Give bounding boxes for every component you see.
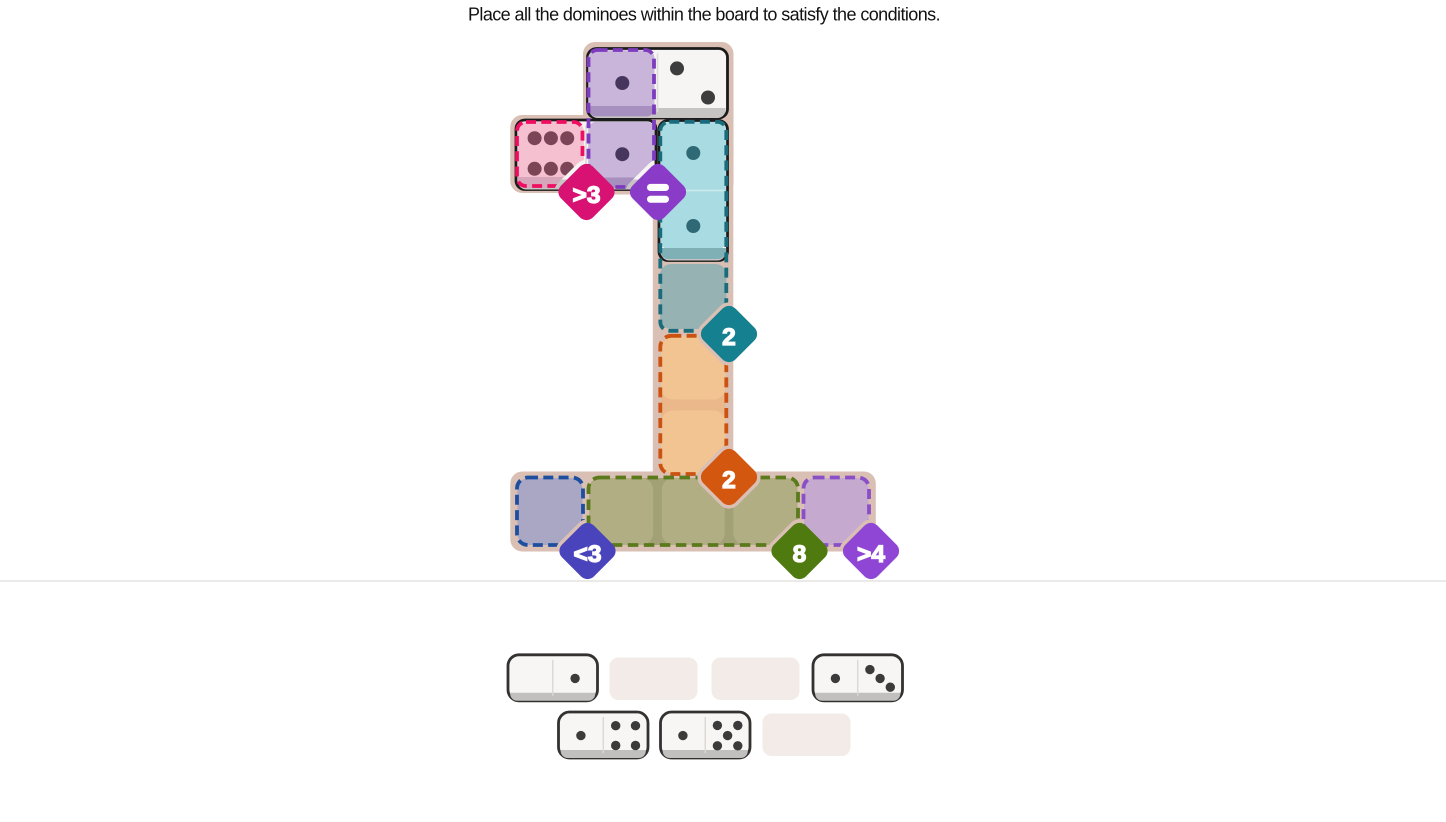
svg-text:<3: <3 (574, 541, 602, 568)
svg-text:8: 8 (793, 541, 807, 568)
svg-text:2: 2 (722, 324, 736, 351)
svg-text:Place all the dominoes within: Place all the dominoes within the board … (468, 5, 940, 25)
svg-text:>4: >4 (857, 541, 885, 568)
svg-text:>3: >3 (573, 182, 601, 209)
svg-text:2: 2 (722, 467, 736, 494)
